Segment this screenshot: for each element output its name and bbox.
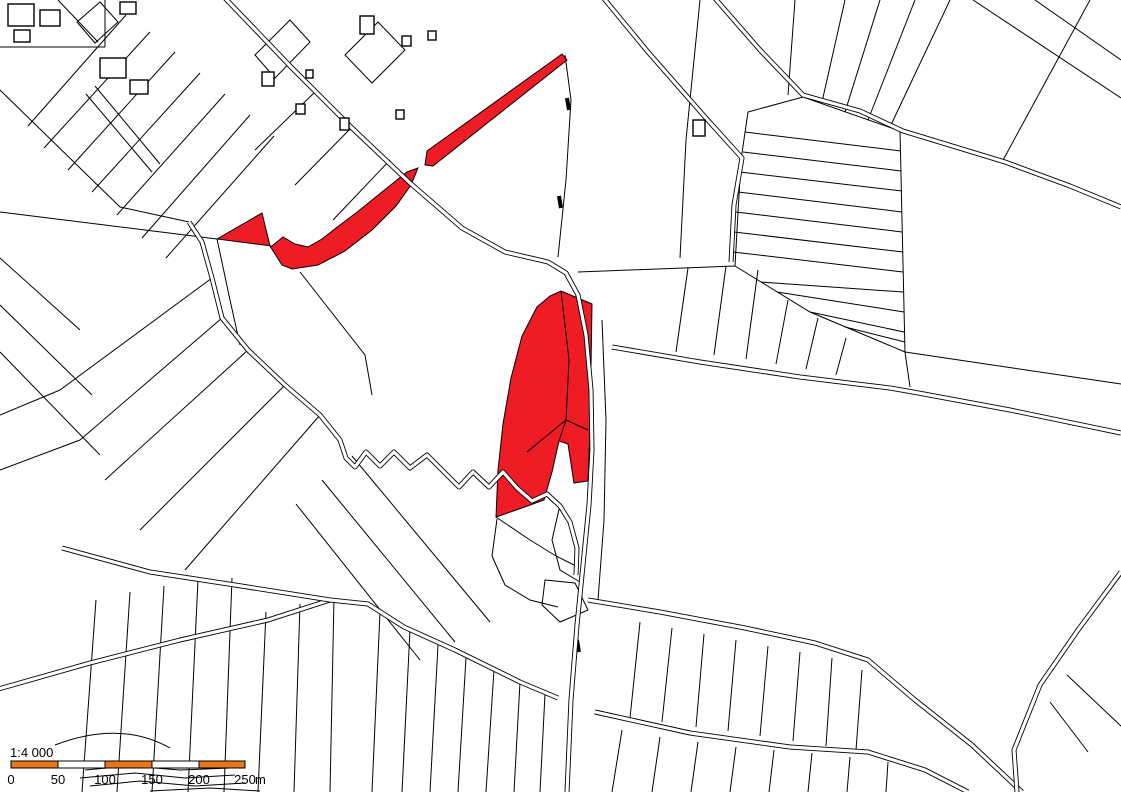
building bbox=[402, 36, 411, 46]
road-northeast-steep bbox=[601, 0, 742, 262]
building bbox=[306, 70, 313, 78]
highlighted-parcels bbox=[217, 54, 592, 517]
highlighted-parcel-west[interactable] bbox=[217, 168, 418, 269]
scale-bar: 1:4 000 0 50 100 150 200 250 m bbox=[7, 745, 265, 787]
buildings bbox=[8, 2, 705, 136]
building bbox=[360, 16, 374, 34]
building bbox=[296, 104, 305, 114]
scale-label-100: 100 bbox=[94, 772, 116, 787]
building bbox=[693, 120, 705, 136]
building bbox=[120, 2, 136, 14]
scale-label-0: 0 bbox=[7, 772, 14, 787]
highlighted-parcel-strip[interactable] bbox=[425, 54, 567, 166]
road-east-band bbox=[612, 347, 1121, 433]
scale-unit-label: m bbox=[255, 772, 266, 787]
scale-label-200: 200 bbox=[188, 772, 210, 787]
building bbox=[396, 110, 404, 119]
scale-segment bbox=[199, 761, 245, 768]
building bbox=[14, 30, 30, 42]
road-southwest-village bbox=[0, 600, 330, 690]
building bbox=[340, 118, 349, 130]
scale-segment bbox=[58, 761, 105, 768]
road-west-lane bbox=[62, 548, 558, 698]
scale-segment bbox=[11, 761, 58, 768]
scale-segment bbox=[152, 761, 199, 768]
map-viewport: 1:4 000 0 50 100 150 200 250 m bbox=[0, 0, 1121, 792]
map-canvas[interactable]: 1:4 000 0 50 100 150 200 250 m bbox=[0, 0, 1121, 792]
scale-bar-segments bbox=[11, 761, 245, 768]
building bbox=[100, 58, 126, 78]
building bbox=[262, 72, 274, 86]
building bbox=[130, 80, 148, 94]
road-east-diagonal bbox=[1014, 572, 1121, 792]
scale-label-50: 50 bbox=[51, 772, 65, 787]
scale-label-150: 150 bbox=[141, 772, 163, 787]
scale-label-250: 250 bbox=[234, 772, 256, 787]
road-southeast-upper bbox=[588, 600, 1022, 792]
road-southeast-lower bbox=[595, 712, 968, 792]
scale-bar-labels: 0 50 100 150 200 250 m bbox=[7, 772, 265, 787]
building bbox=[428, 31, 436, 40]
scale-ratio-text: 1:4 000 bbox=[10, 745, 53, 760]
building bbox=[40, 10, 60, 26]
scale-segment bbox=[105, 761, 152, 768]
building bbox=[8, 4, 34, 26]
